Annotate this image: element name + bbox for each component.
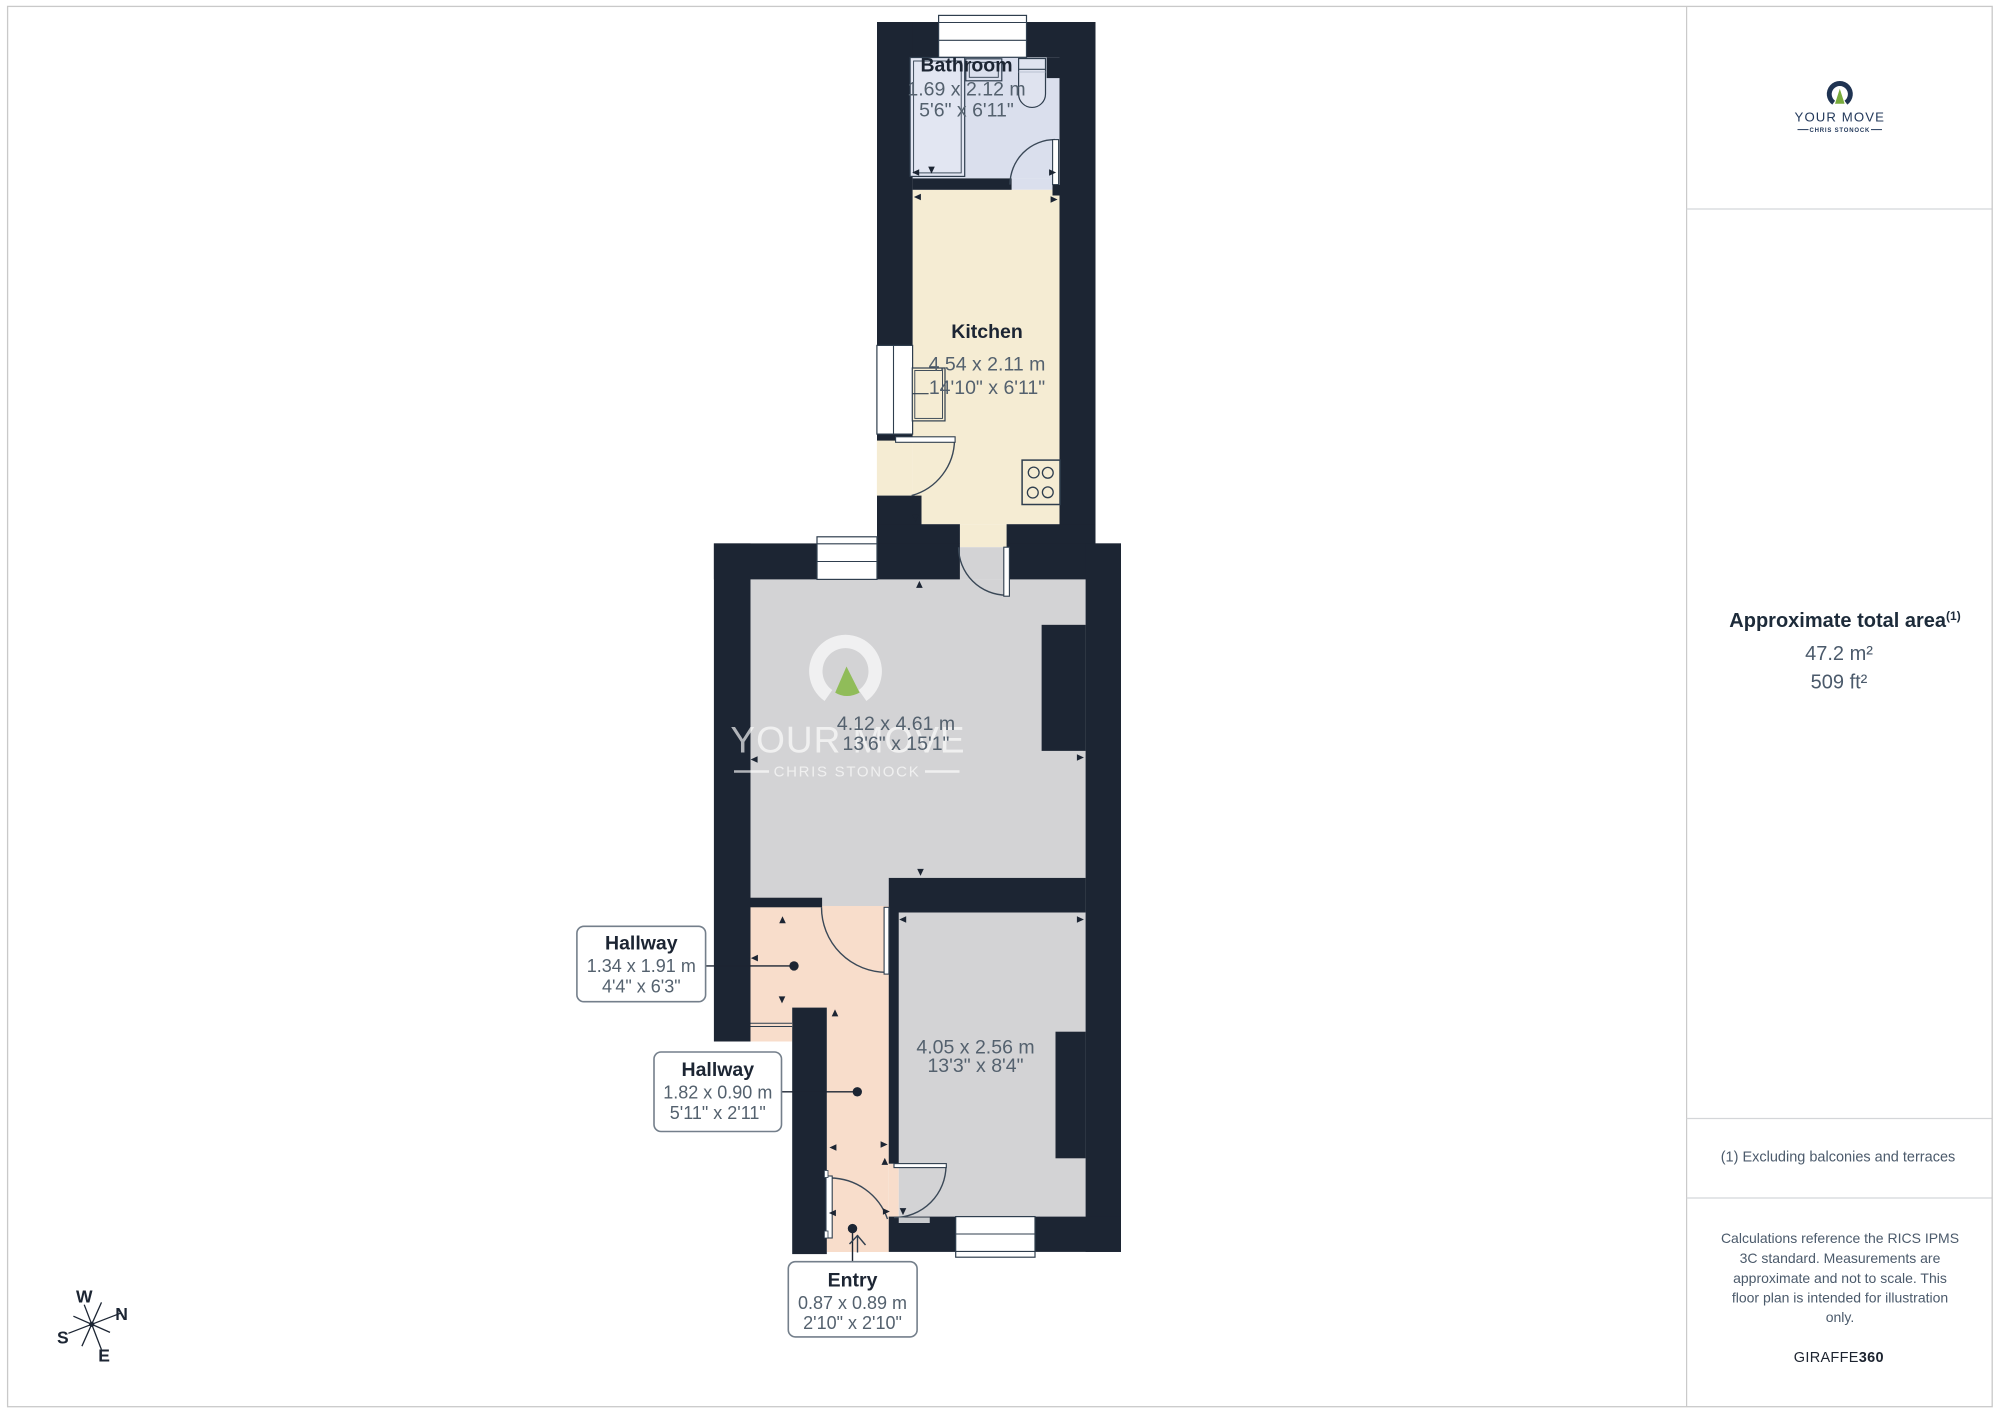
svg-text:1.34 x 1.91 m: 1.34 x 1.91 m bbox=[587, 956, 696, 976]
svg-text:Kitchen: Kitchen bbox=[951, 321, 1023, 343]
svg-text:(1) Excluding balconies and te: (1) Excluding balconies and terraces bbox=[1721, 1150, 1956, 1166]
svg-text:47.2 m²: 47.2 m² bbox=[1805, 643, 1873, 665]
svg-text:13'3" x 8'4": 13'3" x 8'4" bbox=[927, 1055, 1023, 1077]
svg-text:Bathroom: Bathroom bbox=[920, 55, 1012, 77]
svg-text:13'6" x 15'1": 13'6" x 15'1" bbox=[843, 733, 950, 755]
svg-text:14'10" x 6'11": 14'10" x 6'11" bbox=[929, 377, 1045, 399]
svg-text:509 ft²: 509 ft² bbox=[1811, 672, 1868, 694]
svg-text:4.54 x 2.11 m: 4.54 x 2.11 m bbox=[929, 354, 1046, 376]
svg-text:Hallway: Hallway bbox=[681, 1059, 754, 1081]
svg-text:YOUR MOVE: YOUR MOVE bbox=[1795, 110, 1886, 125]
svg-text:Calculations reference the RIC: Calculations reference the RICS IPMS bbox=[1721, 1230, 1959, 1246]
svg-text:E: E bbox=[98, 1345, 110, 1365]
svg-text:4.12 x 4.61 m: 4.12 x 4.61 m bbox=[837, 713, 955, 735]
svg-text:N: N bbox=[115, 1304, 128, 1324]
svg-text:1.69 x 2.12 m: 1.69 x 2.12 m bbox=[907, 79, 1025, 101]
svg-text:only.: only. bbox=[1826, 1309, 1855, 1325]
svg-text:3C standard. Measurements are: 3C standard. Measurements are bbox=[1740, 1250, 1941, 1266]
svg-text:Hallway: Hallway bbox=[605, 933, 678, 955]
svg-text:CHRIS STONOCK: CHRIS STONOCK bbox=[1809, 128, 1870, 134]
svg-text:GIRAFFE360: GIRAFFE360 bbox=[1794, 1350, 1884, 1366]
svg-text:1.82 x 0.90 m: 1.82 x 0.90 m bbox=[663, 1083, 772, 1103]
svg-text:5'11" x 2'11": 5'11" x 2'11" bbox=[670, 1103, 766, 1123]
svg-text:S: S bbox=[57, 1328, 69, 1348]
svg-text:4'4" x 6'3": 4'4" x 6'3" bbox=[602, 977, 681, 997]
svg-text:floor plan is intended for ill: floor plan is intended for illustration bbox=[1732, 1290, 1948, 1306]
svg-text:CHRIS STONOCK: CHRIS STONOCK bbox=[774, 764, 921, 781]
svg-text:2'10" x 2'10": 2'10" x 2'10" bbox=[803, 1313, 902, 1333]
svg-text:Entry: Entry bbox=[828, 1270, 878, 1292]
svg-text:Approximate total area(1): Approximate total area(1) bbox=[1729, 609, 1960, 632]
svg-text:approximate and not to scale.: approximate and not to scale. This bbox=[1733, 1270, 1947, 1286]
svg-text:0.87 x 0.89 m: 0.87 x 0.89 m bbox=[798, 1293, 907, 1313]
svg-text:W: W bbox=[76, 1286, 93, 1306]
svg-text:5'6" x 6'11": 5'6" x 6'11" bbox=[919, 100, 1014, 122]
